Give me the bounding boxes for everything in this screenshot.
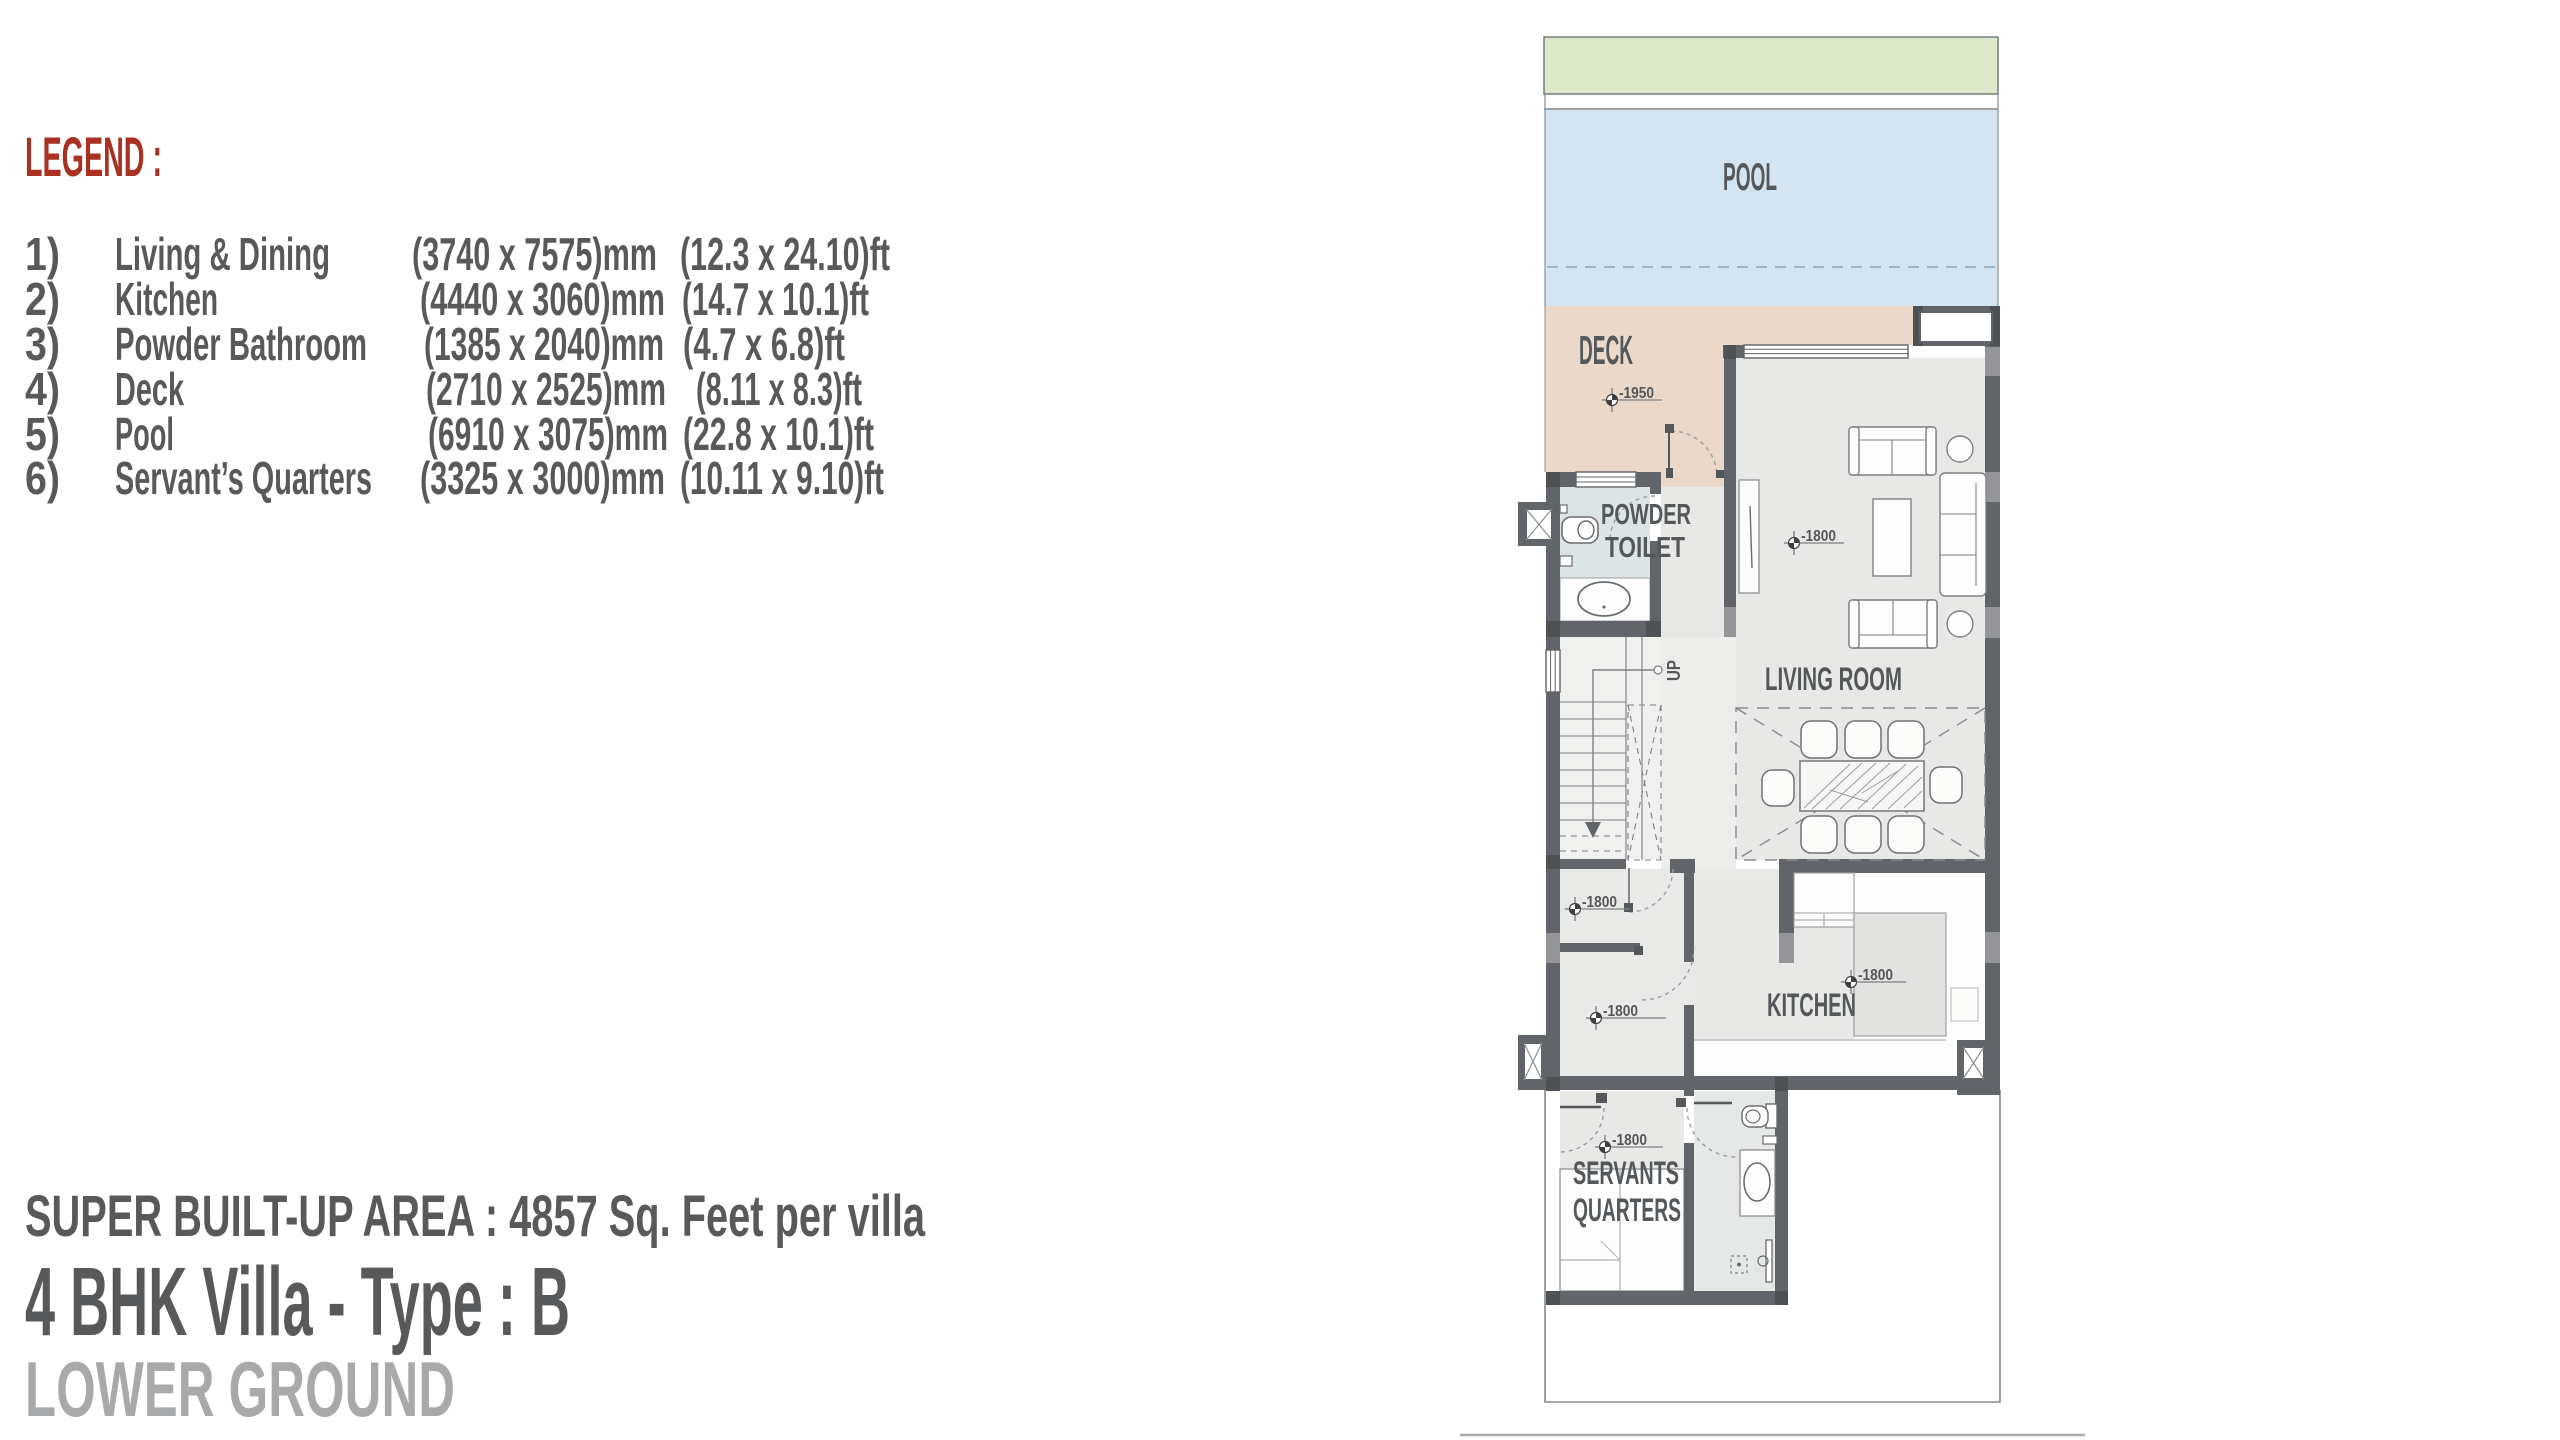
- svg-text:POWDER: POWDER: [1601, 499, 1691, 531]
- svg-text:TOILET: TOILET: [1605, 532, 1685, 564]
- svg-text:LOWER GROUND: LOWER GROUND: [25, 1345, 455, 1433]
- svg-text:-1800: -1800: [1801, 528, 1836, 545]
- svg-text:SUPER BUILT-UP AREA : 4857 Sq.: SUPER BUILT-UP AREA : 4857 Sq. Feet per …: [25, 1184, 926, 1249]
- svg-text:QUARTERS: QUARTERS: [1573, 1192, 1681, 1228]
- svg-text:(3325 x 3000)mm: (3325 x 3000)mm: [420, 452, 665, 504]
- svg-text:-1800: -1800: [1612, 1132, 1647, 1149]
- svg-text:Servant’s Quarters: Servant’s Quarters: [115, 452, 372, 504]
- svg-text:6): 6): [25, 452, 60, 504]
- svg-text:LEGEND :: LEGEND :: [25, 125, 162, 188]
- svg-text:-1800: -1800: [1582, 894, 1617, 911]
- svg-text:4 BHK Villa - Type : B: 4 BHK Villa - Type : B: [25, 1247, 570, 1356]
- svg-text:(10.11 x 9.10)ft: (10.11 x 9.10)ft: [680, 452, 884, 504]
- svg-text:UP: UP: [1664, 660, 1684, 681]
- svg-text:LIVING ROOM: LIVING ROOM: [1765, 661, 1902, 697]
- svg-text:DECK: DECK: [1579, 327, 1633, 373]
- svg-text:SERVANTS: SERVANTS: [1573, 1155, 1679, 1191]
- svg-text:KITCHEN: KITCHEN: [1767, 987, 1856, 1023]
- svg-text:-1800: -1800: [1603, 1003, 1638, 1020]
- svg-text:POOL: POOL: [1723, 156, 1777, 199]
- svg-text:-1950: -1950: [1619, 385, 1654, 402]
- svg-text:-1800: -1800: [1858, 967, 1893, 984]
